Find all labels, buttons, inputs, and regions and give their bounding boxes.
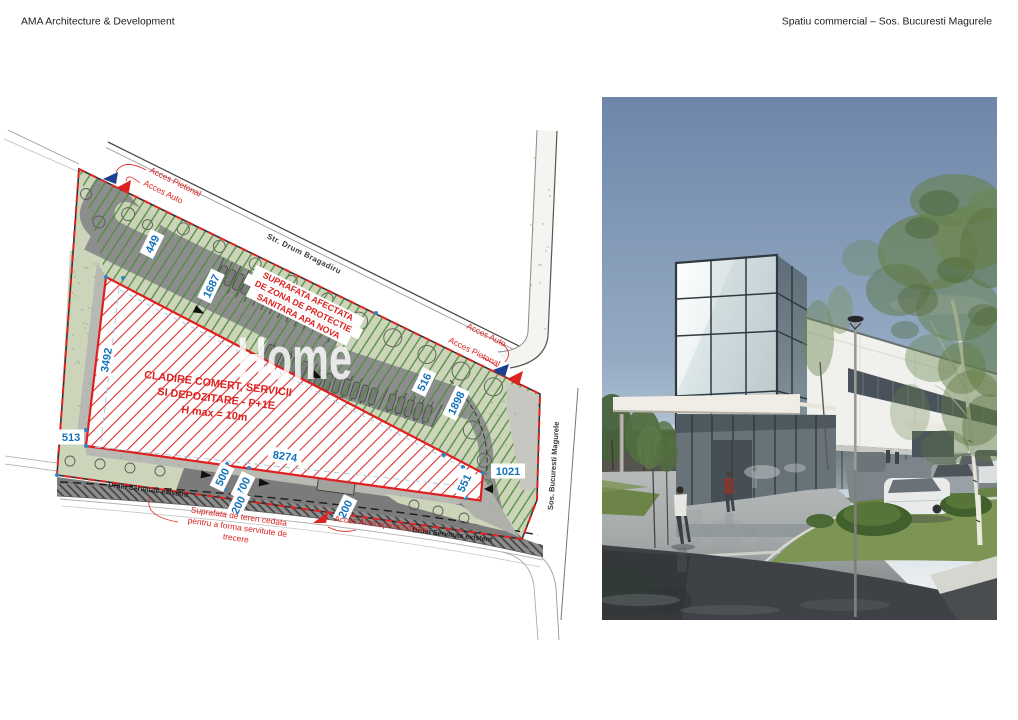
- svg-text:1021: 1021: [496, 466, 520, 478]
- svg-text:513: 513: [62, 432, 80, 444]
- svg-text:Spatiu commercial – Sos. Bucur: Spatiu commercial – Sos. Bucuresti Magur…: [782, 17, 992, 28]
- svg-text:AMA Architecture & Development: AMA Architecture & Development: [21, 17, 175, 28]
- svg-text:Home: Home: [237, 325, 352, 392]
